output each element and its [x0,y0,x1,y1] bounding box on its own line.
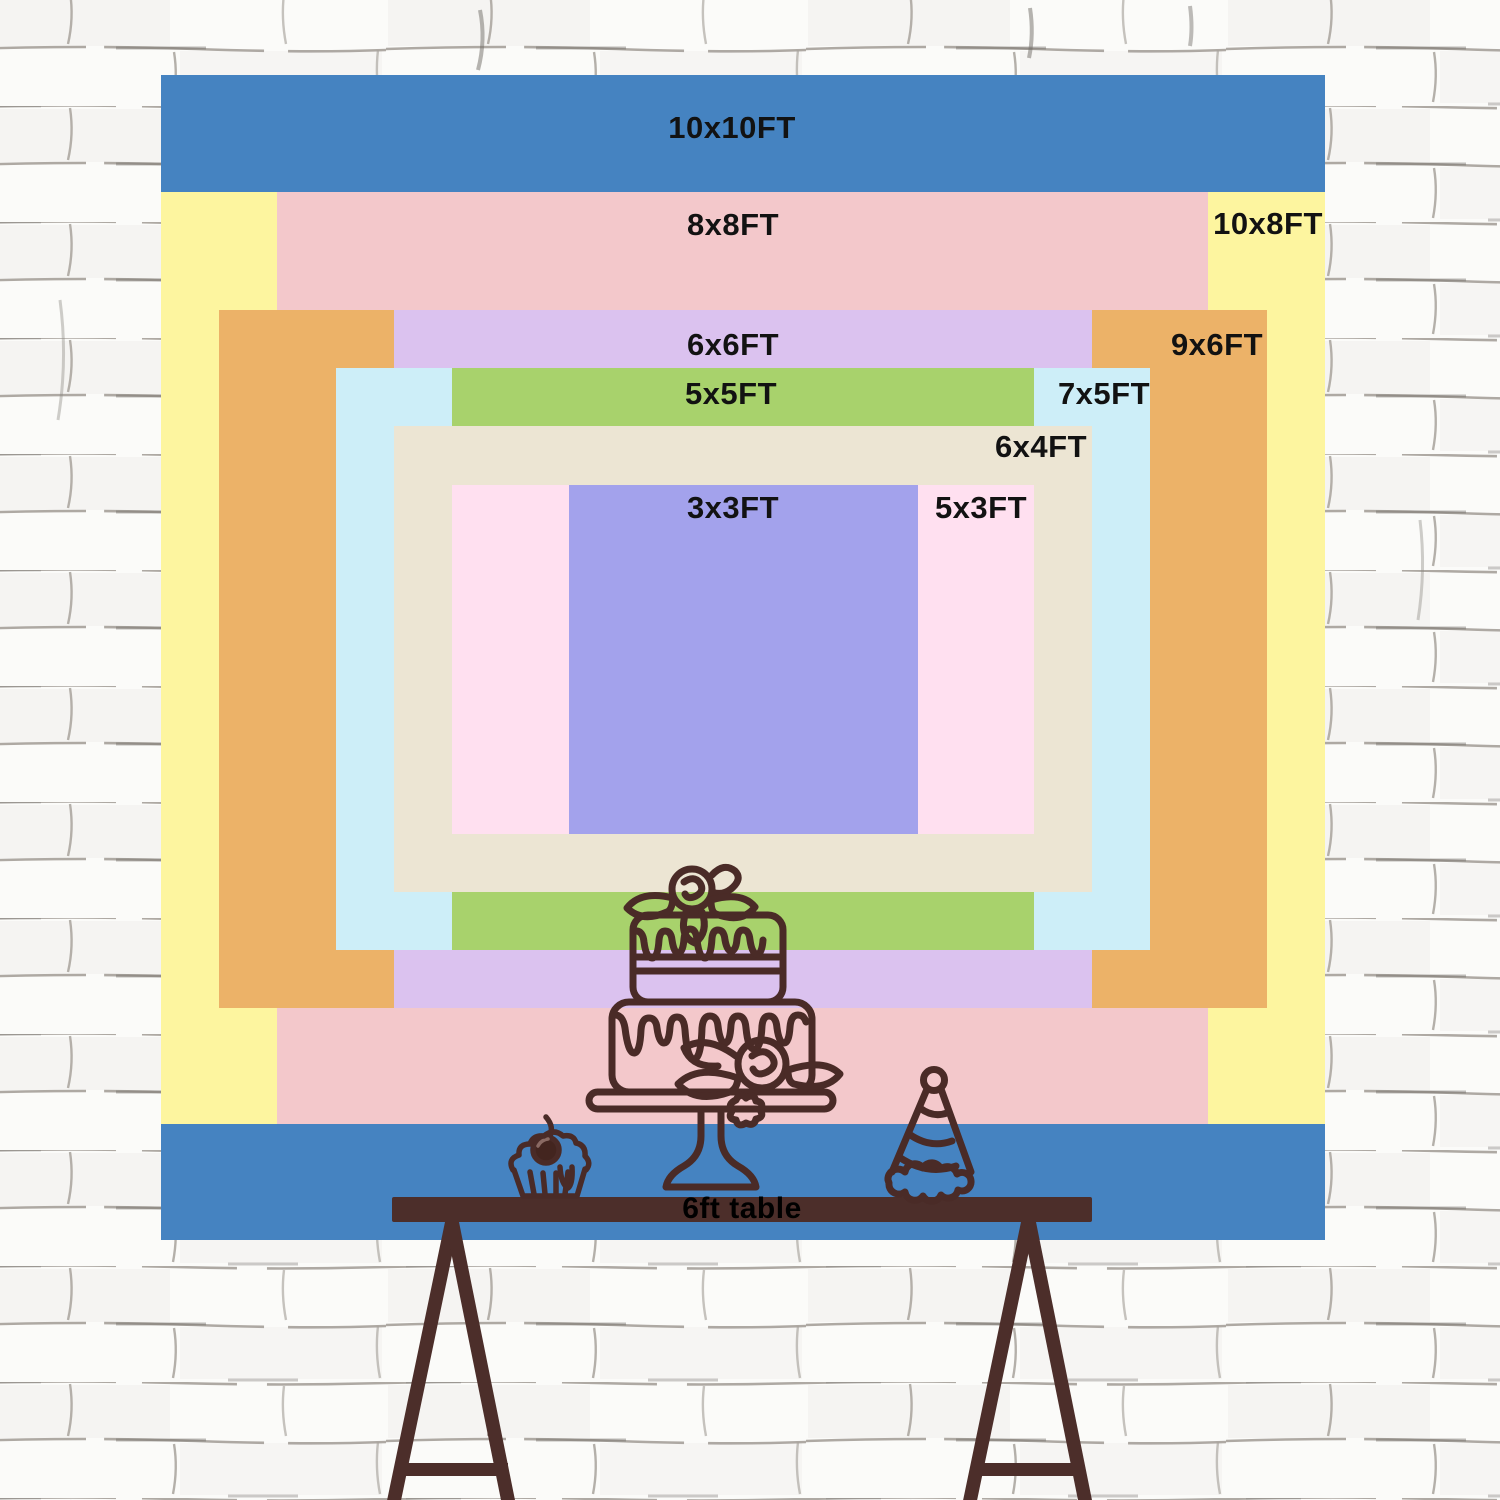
backdrop-size-chart: 10x10FT10x8FT8x8FT9x6FT6x6FT7x5FT5x5FT6x… [0,0,1500,1500]
size-label-7x5ft: 7x5FT [1058,376,1150,412]
size-label-9x6ft: 9x6FT [1171,327,1263,363]
size-label-10x8ft: 10x8FT [1213,206,1323,242]
size-label-5x5ft: 5x5FT [685,376,777,412]
scene: 10x10FT10x8FT8x8FT9x6FT6x6FT7x5FT5x5FT6x… [0,0,1500,1500]
size-label-6x6ft: 6x6FT [687,327,779,363]
table-size-label: 6ft table [682,1192,802,1226]
size-label-6x4ft: 6x4FT [995,429,1087,465]
size-label-10x10ft: 10x10FT [668,110,796,146]
size-band-3x3ft [569,485,918,834]
size-label-5x3ft: 5x3FT [935,490,1027,526]
size-label-3x3ft: 3x3FT [687,490,779,526]
size-label-8x8ft: 8x8FT [687,207,779,243]
